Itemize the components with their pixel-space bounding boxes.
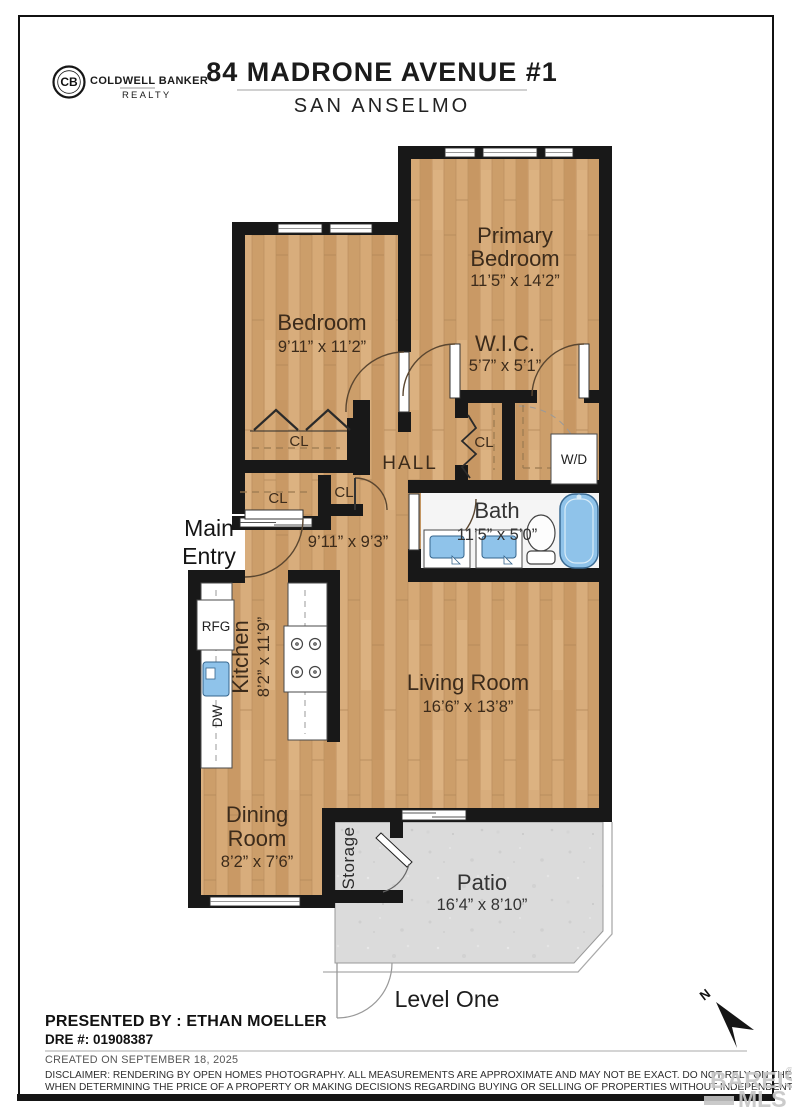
storage-label: Storage: [339, 826, 358, 889]
window-bedroom-2: [330, 224, 372, 233]
wall-bath-bottom: [408, 568, 612, 582]
bath-door-leaf: [409, 494, 419, 550]
disclaimer-line-2: WHEN DETERMINING THE PRICE OF A PROPERTY…: [45, 1082, 792, 1093]
refrigerator-label: RFG: [202, 619, 231, 634]
window-dining: [210, 897, 300, 906]
main-entry-label-1: Main: [184, 515, 234, 541]
washer-dryer-label: W/D: [561, 452, 587, 467]
dre-number: DRE #: 01908387: [45, 1032, 153, 1047]
level-label: Level One: [395, 986, 500, 1012]
closet3-label: CL: [334, 484, 353, 501]
logo-monogram: CB: [60, 75, 78, 89]
bath-dims: 11’5” x 5’0”: [457, 526, 537, 544]
page-title: 84 MADRONE AVENUE #1: [206, 57, 558, 87]
wall-storage-bottom: [322, 890, 403, 903]
entry-door-leaf: [245, 510, 303, 519]
patio-sliding-door: [402, 810, 466, 820]
bedroom-label: Bedroom: [277, 310, 366, 335]
created-date: CREATED ON SEPTEMBER 18, 2025: [45, 1054, 238, 1066]
window-primary-2: [483, 148, 537, 157]
hall-dims: 9’11” x 9’3”: [308, 533, 388, 551]
dining-room-label-1: Dining: [226, 802, 288, 827]
header: CB COLDWELL BANKER REALTY 84 MADRONE AVE…: [54, 57, 558, 117]
page-subtitle: SAN ANSELMO: [294, 95, 470, 117]
footer: PRESENTED BY : ETHAN MOELLER DRE #: 0190…: [45, 1013, 792, 1093]
primary-bedroom-label-2: Bedroom: [470, 246, 559, 271]
wall-wic-row-left: [455, 390, 537, 403]
kitchen-dims: 8’2” x 11’9”: [255, 617, 273, 697]
stove: [284, 626, 327, 692]
mls-watermark: BAREIS ® MLS: [704, 1066, 792, 1112]
wic-door-left-leaf: [450, 344, 460, 398]
brand-sub: REALTY: [122, 90, 171, 101]
wic-label: W.I.C.: [475, 331, 535, 356]
patio-label: Patio: [457, 870, 507, 895]
watermark-bar: [704, 1096, 734, 1105]
primary-bedroom-dims: 11’5” x 14’2”: [470, 272, 560, 290]
washer-dryer: W/D: [551, 434, 597, 484]
north-arrow-icon: [716, 1002, 754, 1048]
brand-name: COLDWELL BANKER: [90, 75, 208, 87]
presented-by: PRESENTED BY : ETHAN MOELLER: [45, 1013, 327, 1030]
kitchen-faucet: [206, 668, 215, 679]
bath-label: Bath: [474, 498, 519, 523]
wall-closet3-bottom: [318, 504, 363, 516]
primary-bedroom-label-1: Primary: [477, 223, 553, 248]
page-border-bottom: [17, 1094, 775, 1101]
dishwasher-label: DW: [210, 705, 225, 728]
disclaimer-line-1: DISCLAIMER: RENDERING BY OPEN HOMES PHOT…: [45, 1070, 792, 1081]
closet2-label: CL: [268, 490, 287, 507]
wic-closet-label: CL: [474, 434, 493, 451]
watermark-reg: ®: [786, 1066, 792, 1077]
living-room-dims: 16’6” x 13’8”: [423, 698, 514, 716]
window-bedroom-1: [278, 224, 322, 233]
window-primary-3: [545, 148, 573, 157]
patio-dims: 16’4” x 8’10”: [437, 896, 528, 914]
wall-stub-hall: [398, 412, 411, 432]
wall-kitchen-top-stub: [188, 570, 245, 583]
wall-wiccl-stub-top: [455, 403, 468, 418]
bedroom-dims: 9’11” x 11’2”: [278, 338, 366, 356]
floorplan-canvas: CB COLDWELL BANKER REALTY 84 MADRONE AVE…: [0, 0, 792, 1120]
dining-room-dims: 8’2” x 7’6”: [221, 853, 293, 871]
bathtub-drain: [577, 495, 582, 500]
wic-dims: 5’7” x 5’1”: [469, 357, 541, 375]
coldwell-banker-logo: CB COLDWELL BANKER REALTY: [54, 67, 209, 102]
toilet-tank: [527, 551, 555, 564]
floorplan-page: { "header": { "brand_line1": "COLDWELL B…: [0, 0, 792, 1120]
hall-label: HALL: [382, 453, 438, 474]
north-arrow: N: [697, 986, 754, 1048]
wall-peninsula: [327, 570, 340, 742]
north-letter: N: [697, 986, 714, 1004]
wall-closet1-bottom: [232, 460, 365, 473]
dining-room-label-2: Room: [228, 826, 287, 851]
closet1-label: CL: [289, 433, 308, 450]
window-primary-1: [445, 148, 475, 157]
wall-storage-right-upper: [390, 808, 403, 838]
living-room-label: Living Room: [407, 670, 529, 695]
patio-gate-arc: [337, 963, 392, 1018]
kitchen-label: Kitchen: [228, 620, 253, 693]
wall-cl-wd-divider: [502, 403, 515, 480]
bedroom-door-leaf: [399, 352, 409, 412]
wall-bedroom-primary-divider: [398, 159, 411, 352]
watermark-mls: MLS: [738, 1086, 787, 1112]
wall-closet-right-stub: [353, 400, 370, 475]
wic-door-right-leaf: [579, 344, 589, 398]
main-entry-label-2: Entry: [182, 543, 236, 569]
